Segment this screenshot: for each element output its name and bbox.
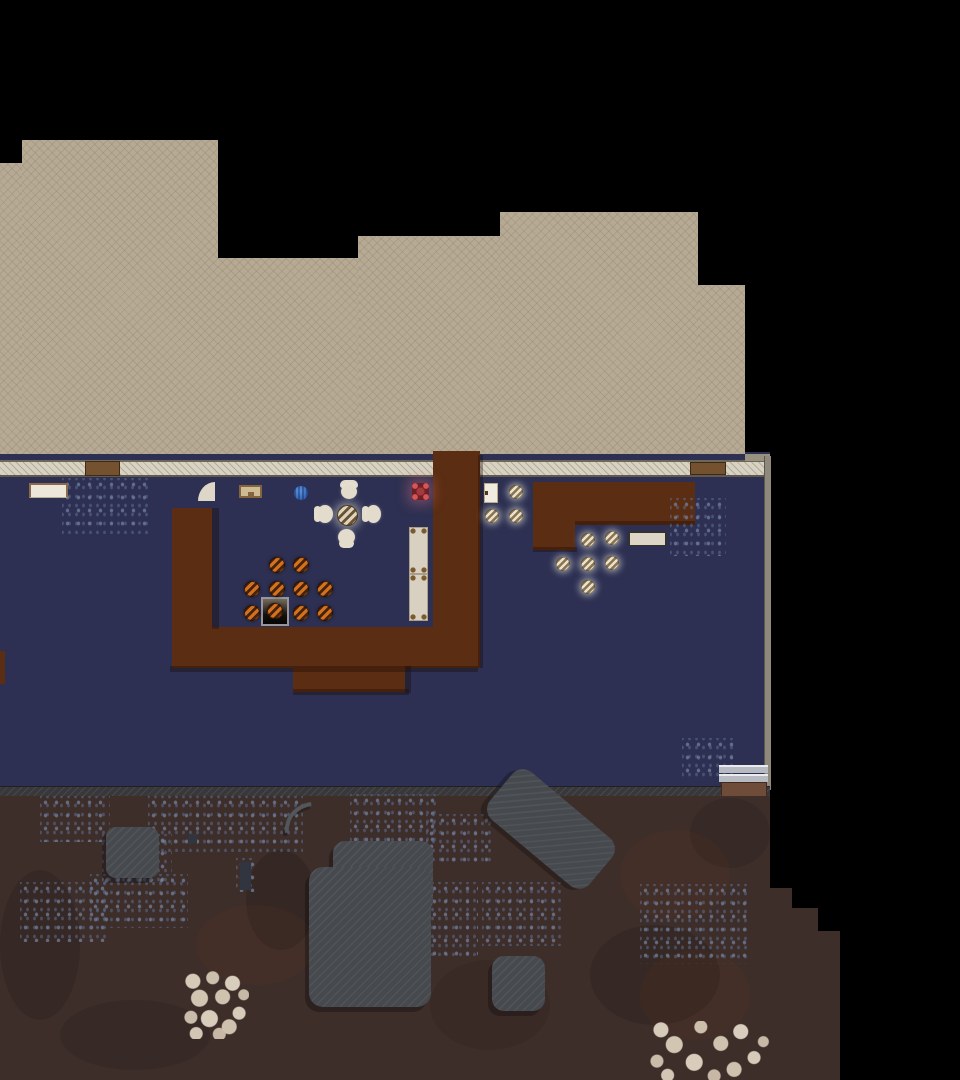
shadow (405, 666, 411, 693)
meal-orange[interactable] (244, 581, 260, 597)
shelf-right[interactable] (628, 531, 667, 546)
meal-orange[interactable] (317, 581, 333, 597)
meal-plated[interactable] (556, 557, 570, 571)
chair-seat (317, 505, 333, 523)
right-wall (764, 456, 771, 790)
chair-bottom[interactable] (337, 529, 356, 548)
wooden-door-right[interactable] (690, 462, 726, 475)
dining-table[interactable] (337, 505, 358, 526)
meal-plated[interactable] (581, 557, 595, 571)
chair-right[interactable] (362, 504, 381, 524)
chair-seat (366, 505, 381, 523)
meal-orange[interactable] (293, 605, 309, 621)
brazier[interactable] (412, 483, 429, 500)
meal-plated[interactable] (485, 509, 499, 523)
crate-row (719, 765, 768, 773)
sand-terrain (218, 258, 358, 454)
shadow (212, 508, 219, 629)
chair-left[interactable] (314, 504, 333, 524)
meal-plated[interactable] (605, 531, 619, 545)
sand-terrain (358, 236, 500, 454)
soil-terrain (818, 931, 840, 1080)
meal-orange[interactable] (293, 557, 309, 573)
shadow (170, 666, 478, 672)
sand-terrain (500, 212, 698, 454)
shadow (293, 689, 409, 695)
rock-formation[interactable] (492, 956, 545, 1011)
meal-plated[interactable] (581, 580, 595, 594)
debris-mark (240, 862, 251, 890)
crate-stack[interactable] (719, 765, 768, 797)
shadow (533, 547, 577, 552)
meal-orange[interactable] (269, 557, 285, 573)
meal-orange[interactable] (317, 605, 333, 621)
sand-terrain (22, 140, 218, 454)
shadow (478, 455, 483, 668)
crate-row (719, 774, 768, 782)
bed[interactable] (409, 527, 428, 574)
dirt-patch (640, 884, 750, 964)
chair-back (339, 541, 354, 548)
wood-sliver-left-edge (0, 651, 5, 684)
wooden-door-left[interactable] (85, 461, 120, 476)
meal-orange-on-stove[interactable] (267, 603, 283, 619)
game-map (0, 0, 960, 1080)
shelf-left[interactable] (29, 483, 68, 498)
meal-plated[interactable] (509, 509, 523, 523)
dirt-patch (40, 796, 110, 842)
meal-orange[interactable] (244, 605, 260, 621)
dirt-patch (418, 882, 478, 956)
stool-seat (341, 484, 357, 499)
bed[interactable] (409, 574, 428, 621)
blue-ball[interactable] (294, 486, 308, 500)
stone-chunk-pile[interactable] (183, 971, 249, 1039)
meal-plated[interactable] (509, 485, 523, 499)
debris-mark (188, 834, 197, 843)
dirt-patch (62, 478, 152, 534)
soil-terrain (792, 908, 818, 1080)
dirt-patch (350, 794, 438, 842)
wall-decoration[interactable] (239, 485, 262, 498)
white-door[interactable] (484, 483, 498, 503)
sand-terrain (0, 163, 22, 454)
meal-plated[interactable] (581, 533, 595, 547)
meal-plated[interactable] (605, 556, 619, 570)
sand-terrain (698, 285, 745, 454)
dirt-patch (482, 882, 562, 946)
stone-chunk-pile[interactable] (641, 1021, 774, 1080)
meal-orange[interactable] (293, 581, 309, 597)
rock-formation[interactable] (106, 827, 159, 878)
stool[interactable] (340, 480, 358, 499)
dirt-patch (670, 498, 726, 556)
meal-orange[interactable] (269, 581, 285, 597)
crate-base (721, 782, 767, 797)
dirt-patch (426, 814, 492, 862)
wood-bar-bottom (172, 627, 478, 668)
